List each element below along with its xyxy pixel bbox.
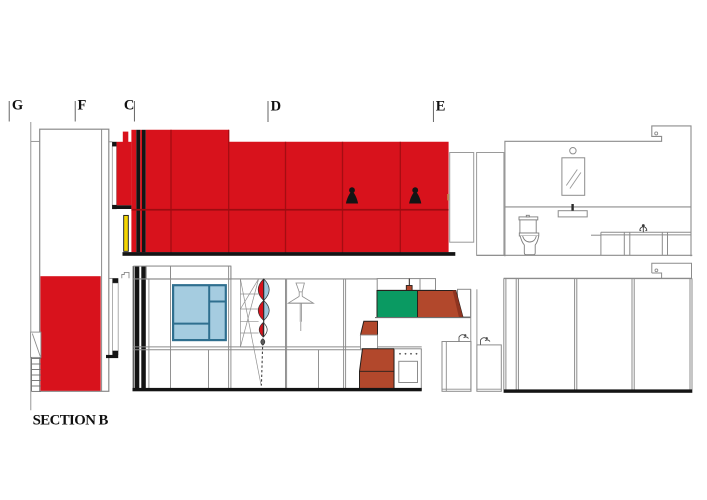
svg-text:E: E	[436, 99, 446, 115]
svg-text:SECTION B: SECTION B	[33, 413, 109, 429]
svg-text:G: G	[12, 98, 23, 114]
svg-text:D: D	[271, 99, 281, 115]
svg-text:F: F	[78, 98, 87, 114]
svg-text:C: C	[124, 98, 134, 114]
